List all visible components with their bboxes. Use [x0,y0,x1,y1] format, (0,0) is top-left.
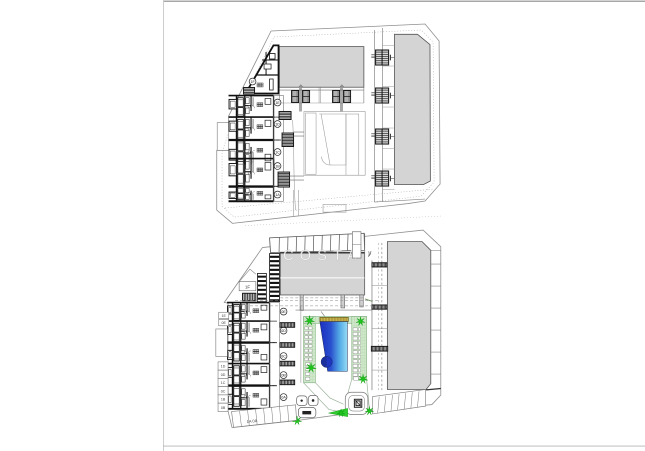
svg-text:1B: 1B [221,398,226,402]
svg-text:0C: 0C [221,389,226,393]
svg-text:1F: 1F [245,284,250,289]
svg-text:1E: 1E [222,314,227,318]
svg-text:0B: 0B [221,406,226,410]
svg-text:1D: 1D [221,365,226,369]
svg-text:1C: 1C [275,150,280,154]
svg-text:0B: 0B [281,373,286,377]
svg-text:0E: 0E [281,310,286,314]
svg-text:1C: 1C [221,381,226,385]
svg-text:0E: 0E [222,321,227,325]
svg-text:1D: 1D [275,122,280,126]
svg-text:1A: 1A [275,193,280,197]
svg-text:0A: 0A [281,395,286,399]
svg-text:0C: 0C [281,354,286,358]
svg-text:COSTA: COSTA [283,248,363,264]
svg-text:0D: 0D [281,329,286,333]
svg-text:1E: 1E [275,101,280,105]
svg-text:0D: 0D [221,373,226,377]
svg-text:1B: 1B [275,164,280,168]
